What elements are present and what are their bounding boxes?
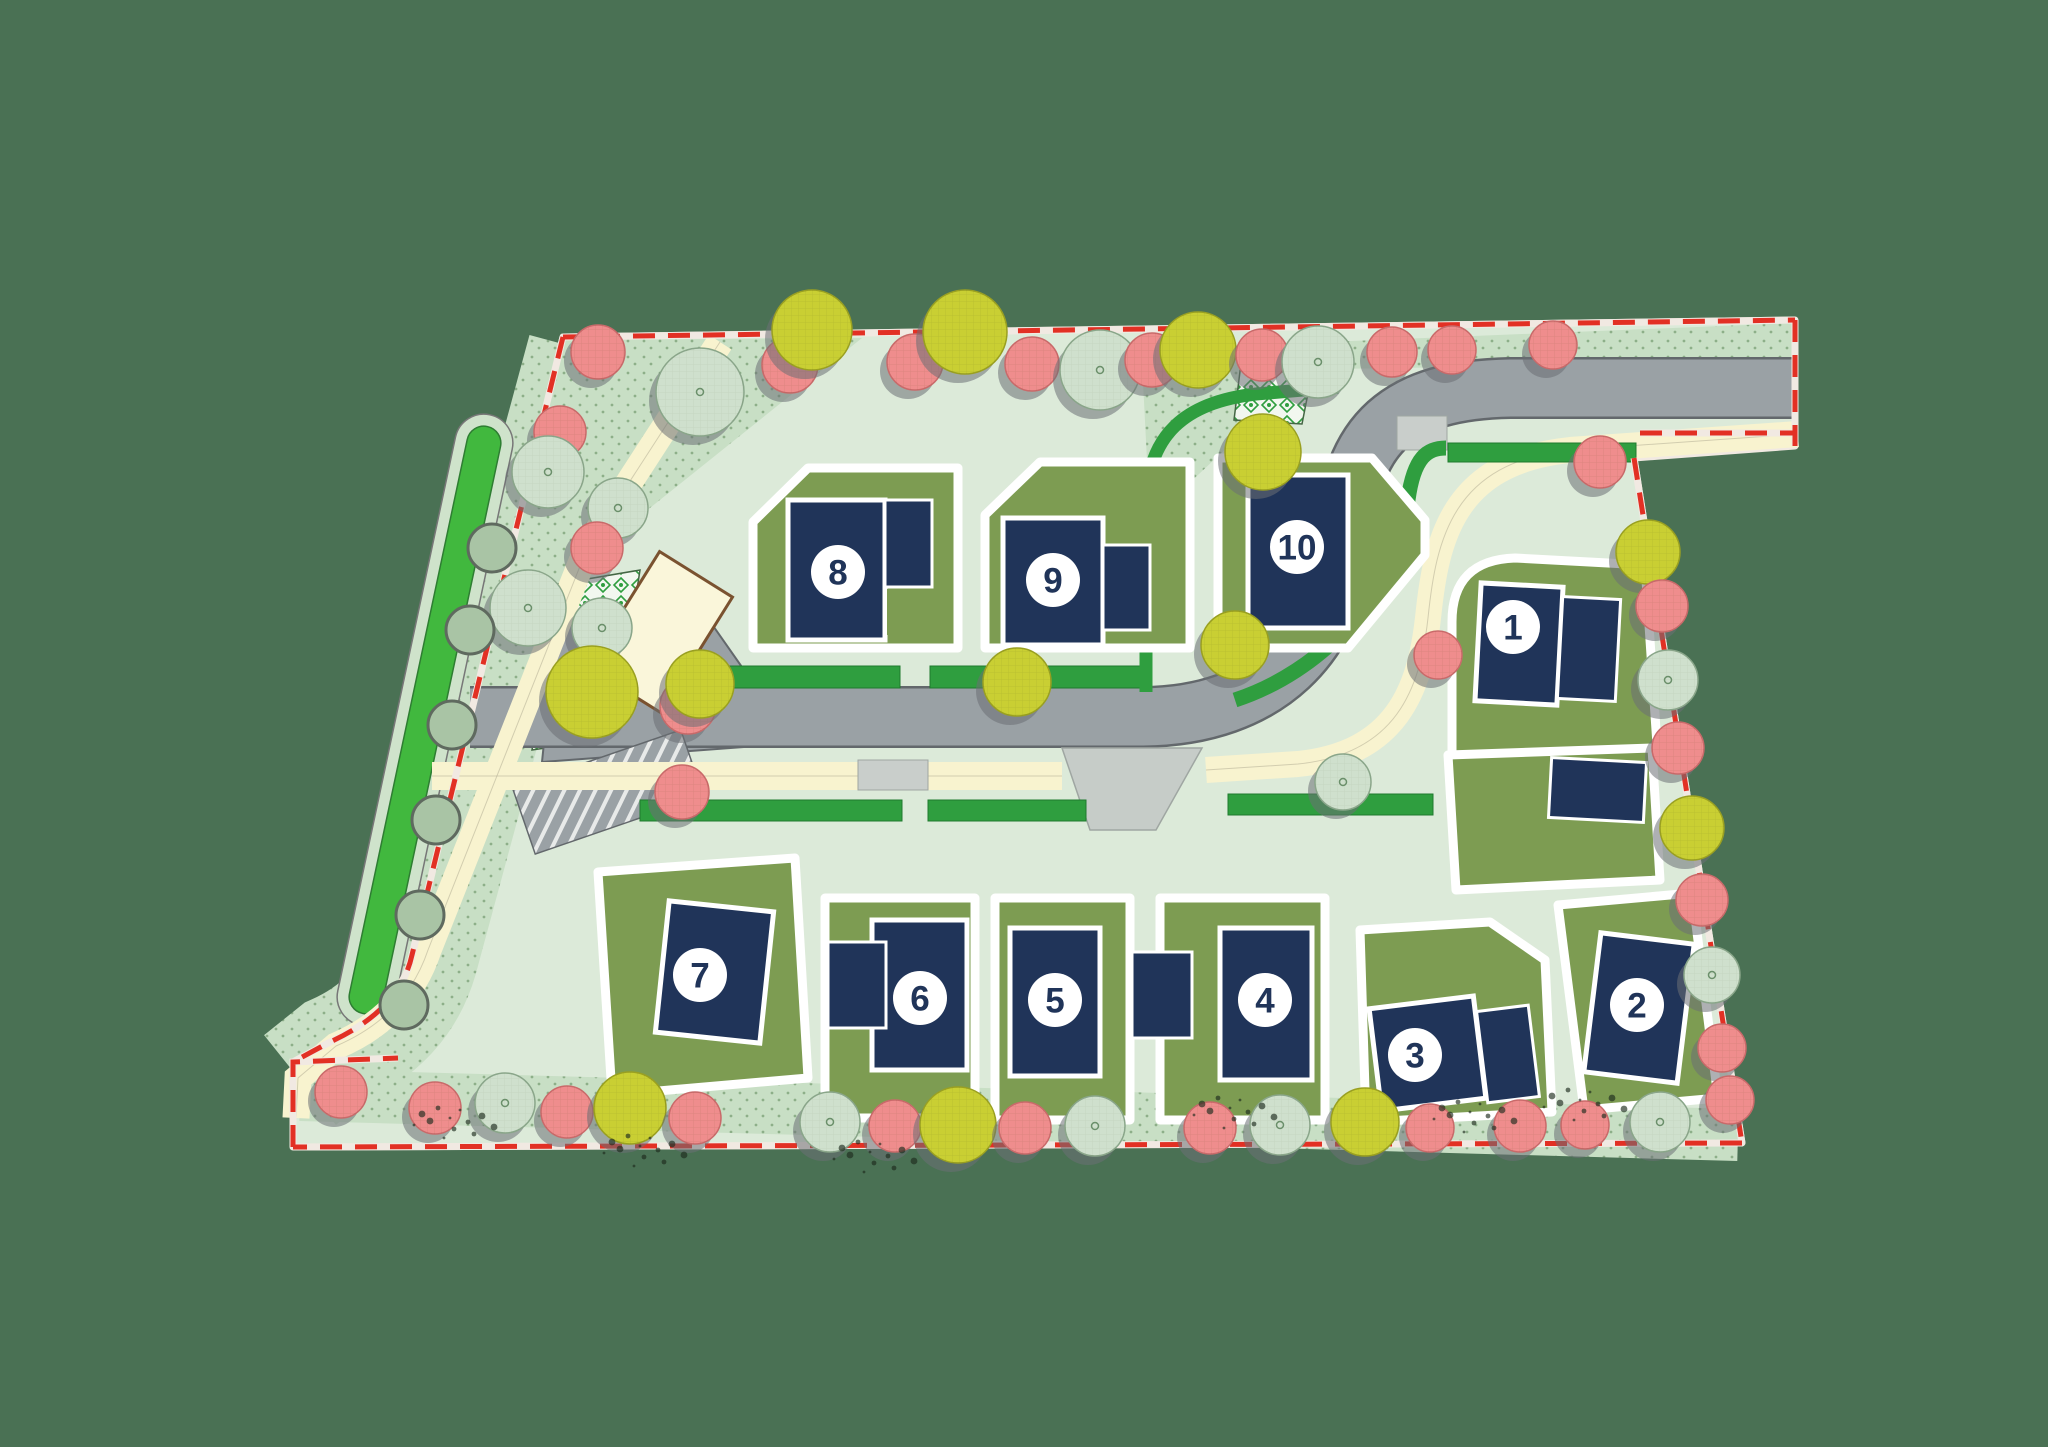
scrub-dot (1246, 1110, 1251, 1115)
house-garage-lot-1 (1557, 597, 1620, 702)
tree-texture (666, 650, 734, 718)
tree-texture (1201, 611, 1269, 679)
scrub-dot (1207, 1108, 1214, 1115)
tree-texture (512, 436, 584, 508)
scrub-dot (1447, 1112, 1454, 1119)
tree-texture (1428, 326, 1476, 374)
tree-texture (541, 1086, 593, 1138)
lot-number-label: 10 (1278, 529, 1317, 568)
scrub-dot (1193, 1114, 1196, 1117)
edge-bush (468, 524, 516, 572)
scrub-dot (479, 1113, 486, 1120)
scrub-dot (609, 1139, 616, 1146)
scrub-dot (886, 1154, 891, 1159)
scrub-dot (1259, 1103, 1266, 1110)
house-garage-lot-9 (1103, 545, 1150, 630)
tree-texture (571, 522, 623, 574)
tree-texture (1698, 1024, 1746, 1072)
scrub-dot (1549, 1093, 1556, 1100)
tree-texture (1315, 754, 1371, 810)
scrub-dot (626, 1134, 631, 1139)
tree-texture (983, 648, 1051, 716)
tree-texture (315, 1066, 367, 1118)
tree-texture (546, 646, 638, 738)
scrub-dot (1499, 1107, 1506, 1114)
scrub-dot (1252, 1122, 1257, 1127)
scrub-dot (1511, 1118, 1518, 1125)
scrub-dot (847, 1152, 854, 1159)
scrub-dot (452, 1127, 457, 1132)
scrub-dot (892, 1166, 897, 1171)
scrub-dot (681, 1152, 688, 1159)
tree-texture (1676, 874, 1728, 926)
scrub-dot (1602, 1114, 1607, 1119)
scrub-dot (662, 1160, 667, 1165)
tree-texture (1638, 650, 1698, 710)
scrub-dot (1557, 1100, 1564, 1107)
lot-number-label: 4 (1255, 982, 1275, 1021)
tree-texture (571, 325, 625, 379)
road-crossing (858, 760, 928, 790)
scrub-dot (1472, 1121, 1477, 1126)
house-garage-lot-2 (1548, 758, 1646, 823)
tree-texture (869, 1100, 921, 1152)
scrub-dot (617, 1146, 624, 1153)
scrub-dot (1229, 1107, 1232, 1110)
tree-texture (1652, 722, 1704, 774)
lot-marker-9[interactable]: 9 (1026, 553, 1080, 607)
scrub-dot (1621, 1106, 1628, 1113)
lot-marker-2[interactable]: 2 (1610, 978, 1664, 1032)
scrub-dot (1596, 1102, 1601, 1107)
edge-bush (412, 796, 460, 844)
edge-bush (380, 981, 428, 1029)
scrub-dot (1199, 1101, 1206, 1108)
scrub-dot (449, 1117, 452, 1120)
scrub-dot (833, 1158, 836, 1161)
scrub-dot (1271, 1114, 1278, 1121)
tree-texture (800, 1092, 860, 1152)
scrub-dot (863, 1171, 866, 1174)
scrub-dot (1479, 1103, 1482, 1106)
lot-marker-7[interactable]: 7 (673, 948, 727, 1002)
scrub-dot (872, 1161, 877, 1166)
tree-texture (1005, 337, 1059, 391)
tree-texture (1616, 520, 1680, 584)
lot-number-label: 8 (828, 554, 847, 593)
edge-bush (428, 701, 476, 749)
edge-bush (396, 891, 444, 939)
tree-texture (923, 290, 1007, 374)
tree-texture (475, 1073, 535, 1133)
scrub-dot (869, 1151, 872, 1154)
tree-texture (1331, 1088, 1399, 1156)
lot-marker-1[interactable]: 1 (1486, 600, 1540, 654)
scrub-dot (459, 1109, 462, 1112)
scrub-dot (603, 1152, 606, 1155)
house-garage-lot-3 (1477, 1005, 1540, 1103)
scrub-dot (649, 1137, 652, 1140)
lot-number-label: 1 (1503, 609, 1522, 648)
tree-texture (1630, 1092, 1690, 1152)
lot-number-label: 3 (1405, 1037, 1424, 1076)
scrub-dot (1463, 1131, 1466, 1134)
tree-texture (656, 348, 744, 436)
scrub-dot (1582, 1109, 1587, 1114)
scrub-dot (1589, 1091, 1592, 1094)
tree-texture (669, 1092, 721, 1144)
tree-texture (1065, 1096, 1125, 1156)
tree-texture (1406, 1104, 1454, 1152)
lot-marker-6[interactable]: 6 (893, 971, 947, 1025)
garden-notch (887, 589, 930, 635)
tree-texture (594, 1072, 666, 1144)
scrub-dot (1433, 1118, 1436, 1121)
lot-number-label: 2 (1627, 987, 1646, 1026)
lot-marker-10[interactable]: 10 (1270, 520, 1324, 574)
house-garage-lot-8 (885, 500, 932, 587)
lot-marker-5[interactable]: 5 (1028, 973, 1082, 1027)
scrub-dot (1573, 1119, 1576, 1122)
scrub-dot (1543, 1106, 1546, 1109)
scrub-dot (656, 1148, 661, 1153)
edge-bush (446, 606, 494, 654)
scrub-dot (1579, 1099, 1582, 1102)
scrub-dot (856, 1140, 861, 1145)
tree-texture (920, 1087, 996, 1163)
scrub-dot (879, 1143, 882, 1146)
lot-number-label: 6 (910, 980, 929, 1019)
tree-texture (999, 1102, 1051, 1154)
scrub-dot (1609, 1095, 1616, 1102)
lot-marker-3[interactable]: 3 (1388, 1028, 1442, 1082)
scrub-dot (669, 1141, 676, 1148)
scrub-dot (419, 1111, 426, 1118)
scrub-dot (427, 1118, 434, 1125)
tree-texture (1414, 631, 1462, 679)
tree-texture (655, 765, 709, 819)
scrub-dot (1216, 1096, 1221, 1101)
tree-texture (1367, 327, 1417, 377)
house-garage-lot-6 (828, 942, 886, 1028)
tree-texture (1250, 1095, 1310, 1155)
scrub-dot (413, 1124, 416, 1127)
lot-marker-8[interactable]: 8 (811, 545, 865, 599)
scrub-dot (639, 1145, 642, 1148)
scrub-dot (642, 1155, 647, 1160)
tree-texture (1706, 1076, 1754, 1124)
scrub-dot (899, 1147, 906, 1154)
tree-texture (409, 1082, 461, 1134)
hedge-strip (928, 800, 1086, 821)
site-plan-svg: 12345678910 (0, 0, 2048, 1447)
scrub-dot (1439, 1105, 1446, 1112)
tree-texture (1561, 1101, 1609, 1149)
tree-texture (1636, 580, 1688, 632)
scrub-dot (839, 1145, 846, 1152)
tree-texture (1282, 326, 1354, 398)
tree-texture (1529, 321, 1577, 369)
tree-texture (490, 570, 566, 646)
lot-number-label: 7 (690, 957, 709, 996)
house-garage-lot-4 (1132, 952, 1192, 1038)
scrub-dot (1486, 1114, 1491, 1119)
scrub-dot (633, 1165, 636, 1168)
scrub-dot (1566, 1088, 1571, 1093)
lot-number-label: 5 (1045, 982, 1064, 1021)
tree-texture (772, 290, 852, 370)
scrub-dot (1232, 1117, 1237, 1122)
site-plan-canvas: 12345678910 (0, 0, 2048, 1447)
scrub-dot (466, 1120, 471, 1125)
tree-texture (1684, 947, 1740, 1003)
scrub-dot (491, 1124, 498, 1131)
scrub-dot (911, 1158, 918, 1165)
tree-texture (1660, 796, 1724, 860)
scrub-dot (436, 1106, 441, 1111)
scrub-dot (1492, 1126, 1497, 1131)
tree-texture (1160, 312, 1236, 388)
scrub-dot (1223, 1127, 1226, 1130)
scrub-dot (1239, 1099, 1242, 1102)
scrub-dot (472, 1132, 477, 1137)
tree-texture (1225, 414, 1301, 490)
scrub-dot (1469, 1111, 1472, 1114)
scrub-dot (443, 1137, 446, 1140)
scrub-dot (1456, 1100, 1461, 1105)
tree-texture (1574, 436, 1626, 488)
lot-marker-4[interactable]: 4 (1238, 973, 1292, 1027)
lot-number-label: 9 (1043, 562, 1062, 601)
